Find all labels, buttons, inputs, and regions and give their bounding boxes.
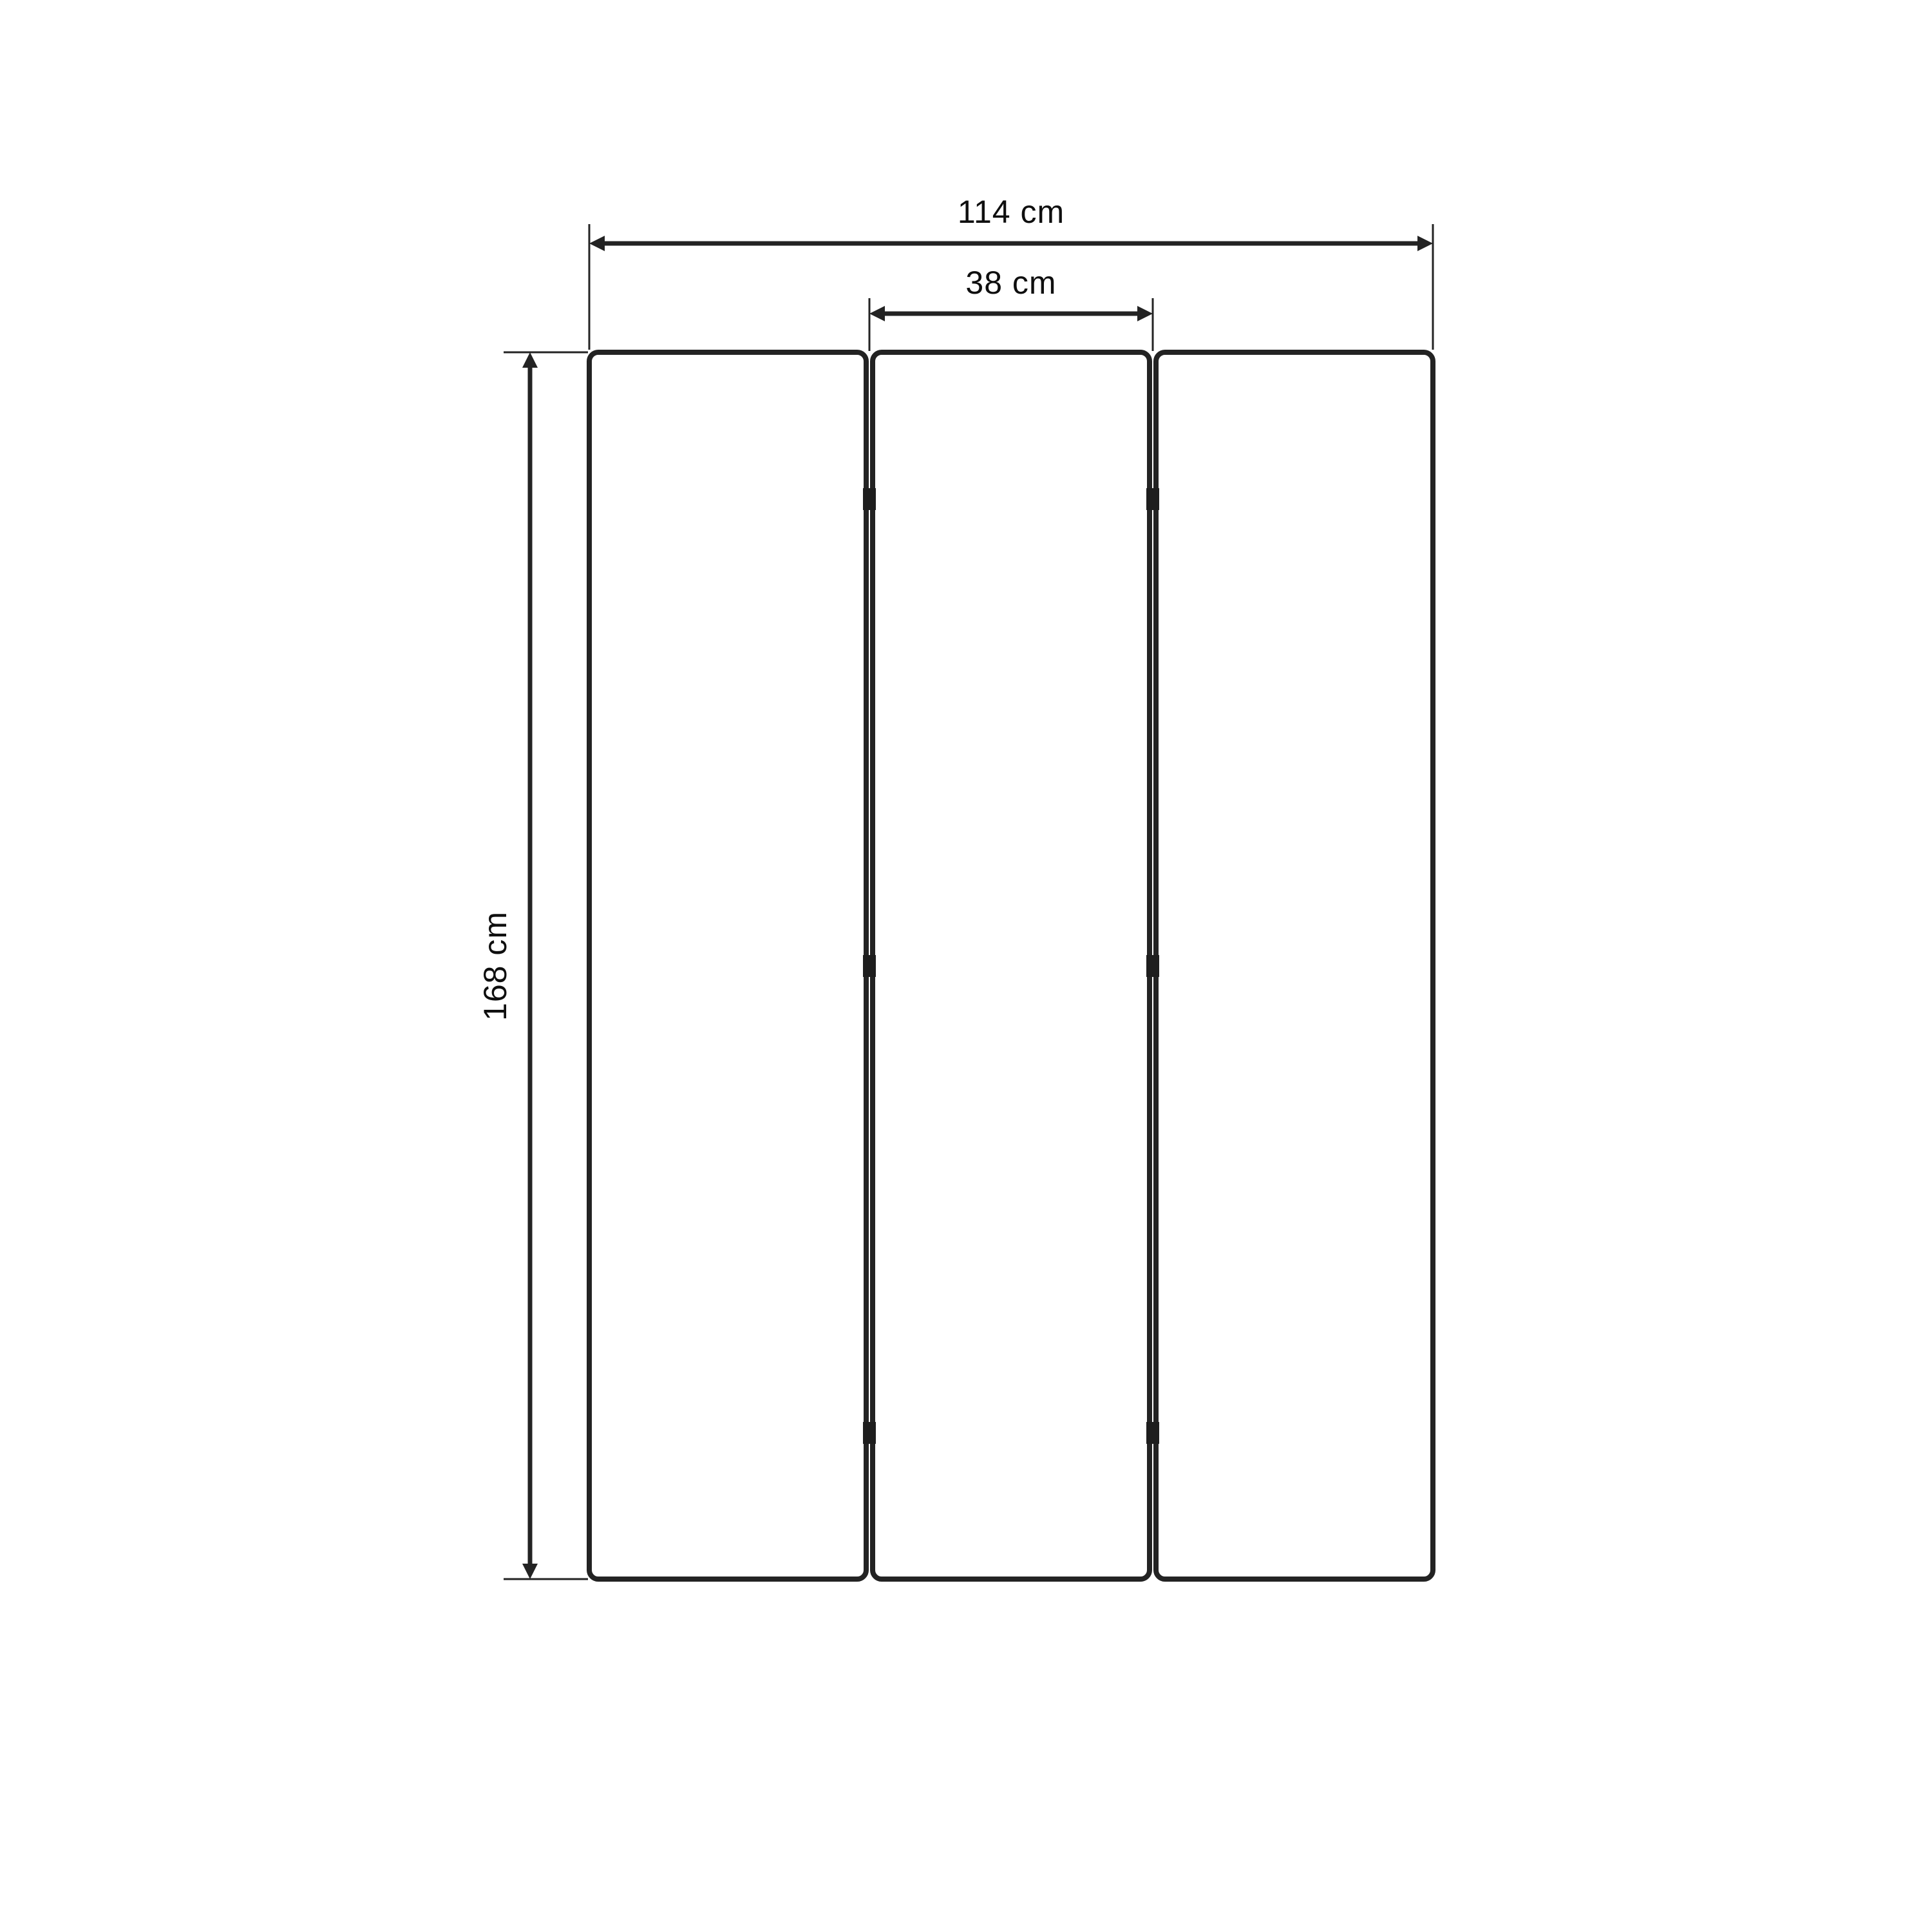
panel-left xyxy=(589,352,866,1579)
hinge-left-gap-top xyxy=(863,488,876,510)
panel-width-label: 38 cm xyxy=(965,265,1056,301)
total-width-label: 114 cm xyxy=(958,194,1065,230)
hinge-left-gap-bottom xyxy=(863,1422,876,1444)
panel-center xyxy=(873,352,1150,1579)
height-label: 168 cm xyxy=(477,911,513,1021)
panel-width-arrowhead-right-icon xyxy=(1137,306,1153,321)
dimension-drawing-page: 114 cm 38 cm 168 cm xyxy=(0,0,1932,1932)
panel-width-arrowhead-left-icon xyxy=(869,306,885,321)
hinge-left-gap-middle xyxy=(863,955,876,977)
panel-width-dimension: 38 cm xyxy=(869,265,1153,351)
panels xyxy=(589,352,1433,1579)
height-dimension: 168 cm xyxy=(477,352,588,1579)
total-width-arrowhead-left-icon xyxy=(589,236,605,251)
three-panel-screen-drawing: 114 cm 38 cm 168 cm xyxy=(0,0,1932,1932)
hinge-right-gap-middle xyxy=(1146,955,1159,977)
total-width-arrowhead-right-icon xyxy=(1417,236,1433,251)
panel-right xyxy=(1156,352,1433,1579)
height-arrowhead-top-icon xyxy=(522,352,538,368)
hinge-right-gap-bottom xyxy=(1146,1422,1159,1444)
hinge-right-gap-top xyxy=(1146,488,1159,510)
height-arrowhead-bottom-icon xyxy=(522,1564,538,1579)
